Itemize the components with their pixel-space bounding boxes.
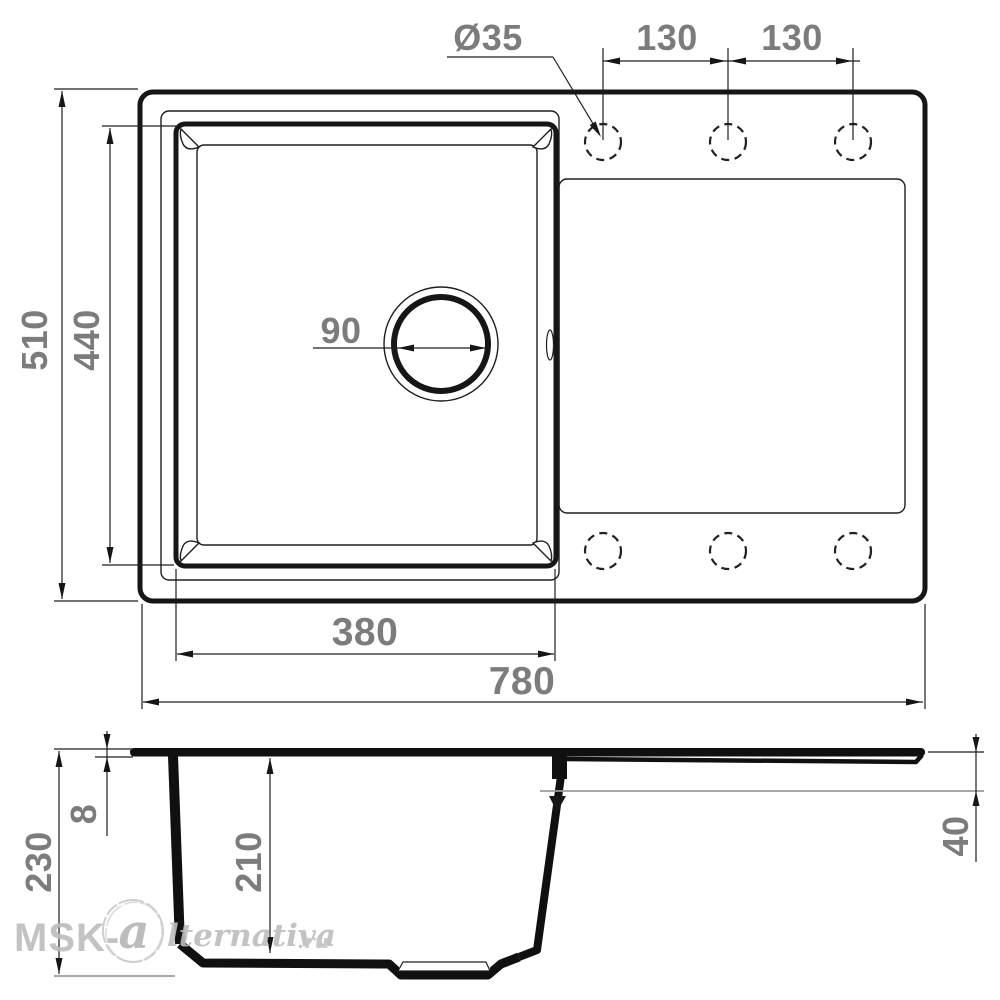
ledge-front-edge (552, 752, 567, 779)
tap-hole (710, 533, 746, 569)
drain-outer-circle (384, 287, 498, 401)
dim-bowl-inner-depth-label: 210 (228, 831, 269, 893)
deck-surface (130, 748, 925, 757)
bowl-left-wall (173, 756, 180, 944)
drain-recess-gap (399, 950, 490, 971)
dim-hole-pitch-left-label: 130 (636, 17, 698, 58)
top-view (140, 92, 925, 601)
bowl-outer-edge (176, 124, 556, 566)
dim-hole-diameter-label: Ø35 (453, 17, 523, 58)
watermark-tld: .ru (297, 929, 329, 953)
overflow-slot (547, 330, 554, 360)
drain-inner-circle (394, 297, 488, 391)
ledge-tip (549, 796, 566, 812)
dim-bowl-width-label: 380 (332, 611, 399, 654)
dim-overall-depth-label: 510 (14, 309, 55, 371)
dim-overall-width-label: 780 (489, 660, 556, 703)
bowl-corner-chamfers (180, 129, 551, 561)
dim-hole-pitch-right-label: 130 (761, 17, 823, 58)
tap-holes (585, 124, 871, 569)
watermark-initial: a (118, 904, 149, 960)
drainboard-outline (559, 179, 905, 513)
dim-rim-thickness-label: 8 (63, 804, 104, 825)
tap-hole (835, 533, 871, 569)
drawing-canvas: Ø35 130 130 510 440 90 (0, 0, 1000, 1000)
dim-deck-ledge-height-label: 40 (935, 815, 976, 856)
sink-outer-edge (140, 92, 925, 601)
dim-bowl-depth-label: 440 (66, 309, 107, 371)
dim-overall-height-label: 230 (18, 831, 59, 893)
dim-drain-diameter-label: 90 (320, 310, 361, 351)
tap-hole (585, 533, 621, 569)
sink-technical-drawing: Ø35 130 130 510 440 90 (0, 0, 1000, 1000)
